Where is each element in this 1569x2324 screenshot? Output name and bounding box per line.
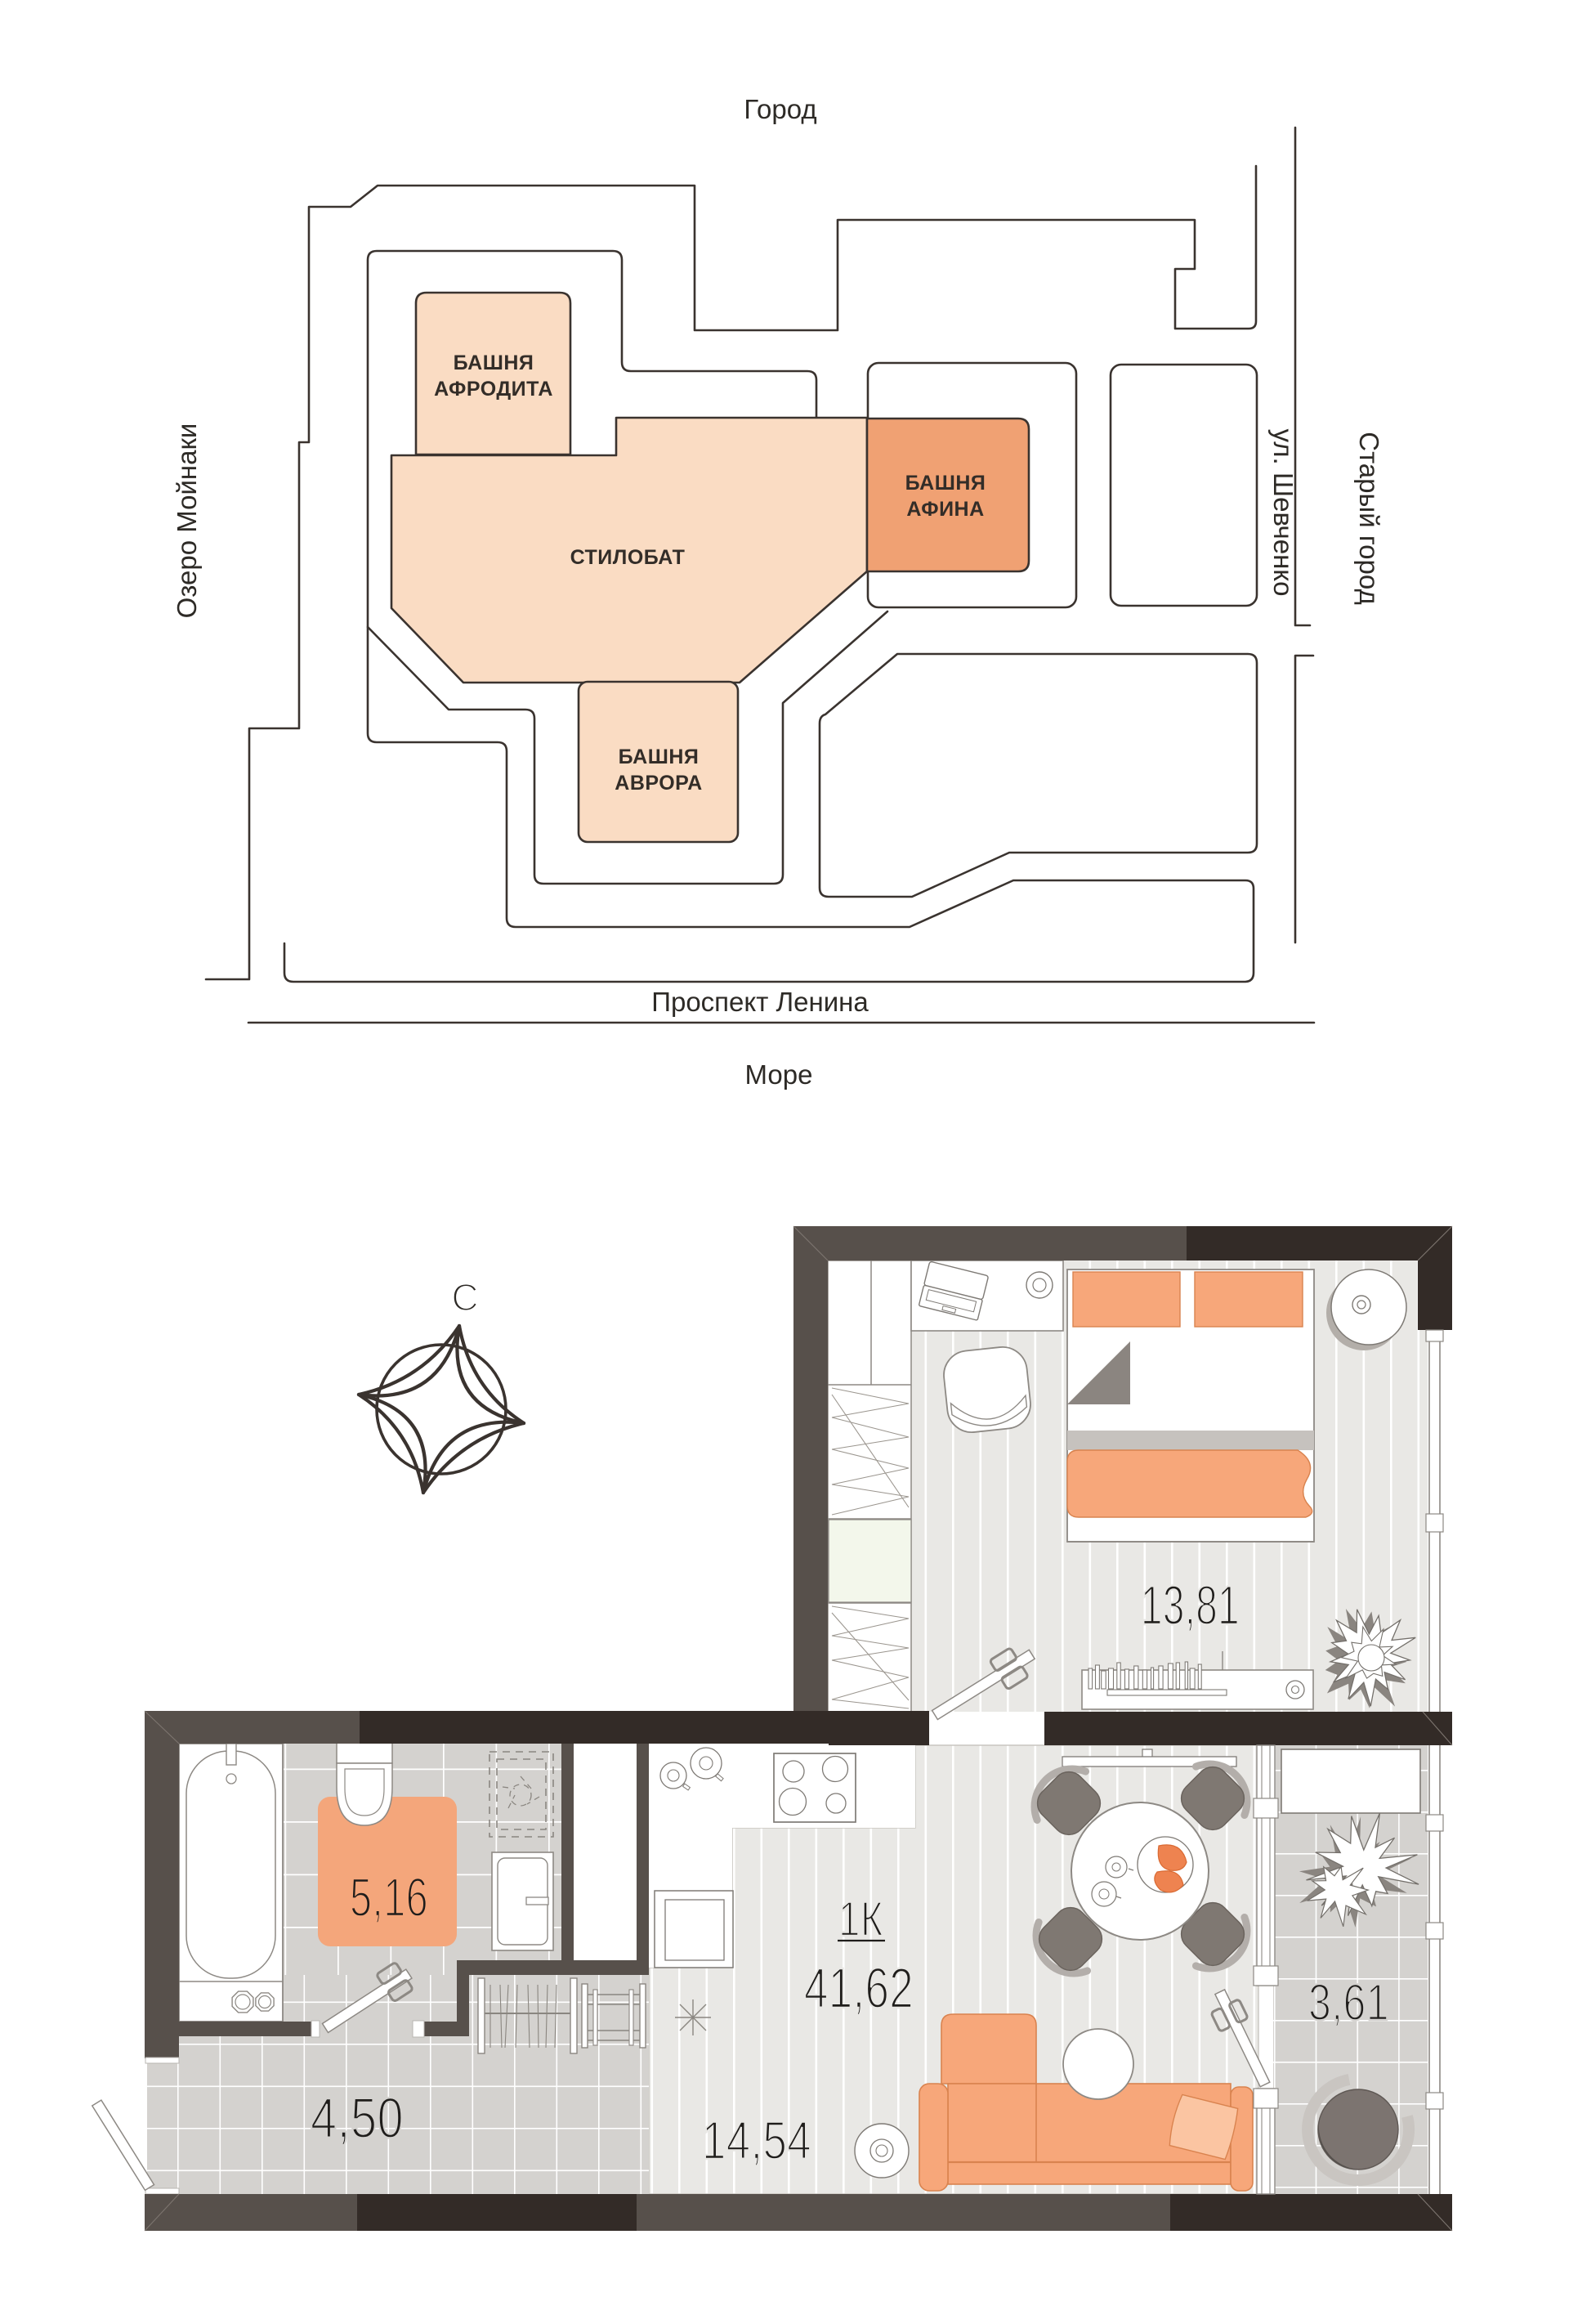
svg-text:Старый город: Старый город: [1354, 432, 1384, 605]
svg-text:Море: Море: [745, 1059, 813, 1090]
svg-text:4,50: 4,50: [311, 2086, 404, 2150]
svg-text:Город: Город: [744, 94, 816, 124]
svg-text:АФРОДИТА: АФРОДИТА: [434, 378, 553, 401]
svg-text:5,16: 5,16: [350, 1867, 428, 1928]
svg-text:БАШНЯ: БАШНЯ: [454, 352, 534, 374]
svg-text:3,61: 3,61: [1308, 1974, 1389, 2031]
svg-text:Озеро Мойнаки: Озеро Мойнаки: [172, 423, 202, 619]
svg-text:13,81: 13,81: [1141, 1574, 1240, 1637]
svg-text:41,62: 41,62: [804, 1956, 914, 2020]
svg-text:14,54: 14,54: [702, 2110, 811, 2170]
svg-text:АФИНА: АФИНА: [906, 498, 984, 521]
svg-text:СТИЛОБАТ: СТИЛОБАТ: [570, 546, 686, 569]
svg-text:1К: 1К: [838, 1892, 883, 1946]
svg-text:БАШНЯ: БАШНЯ: [905, 472, 986, 495]
svg-text:БАШНЯ: БАШНЯ: [619, 746, 700, 768]
svg-text:АВРОРА: АВРОРА: [615, 772, 702, 795]
svg-text:Проспект Ленина: Проспект Ленина: [651, 987, 869, 1017]
svg-text:ул. Шевченко: ул. Шевченко: [1268, 429, 1299, 597]
svg-text:С: С: [451, 1276, 478, 1319]
